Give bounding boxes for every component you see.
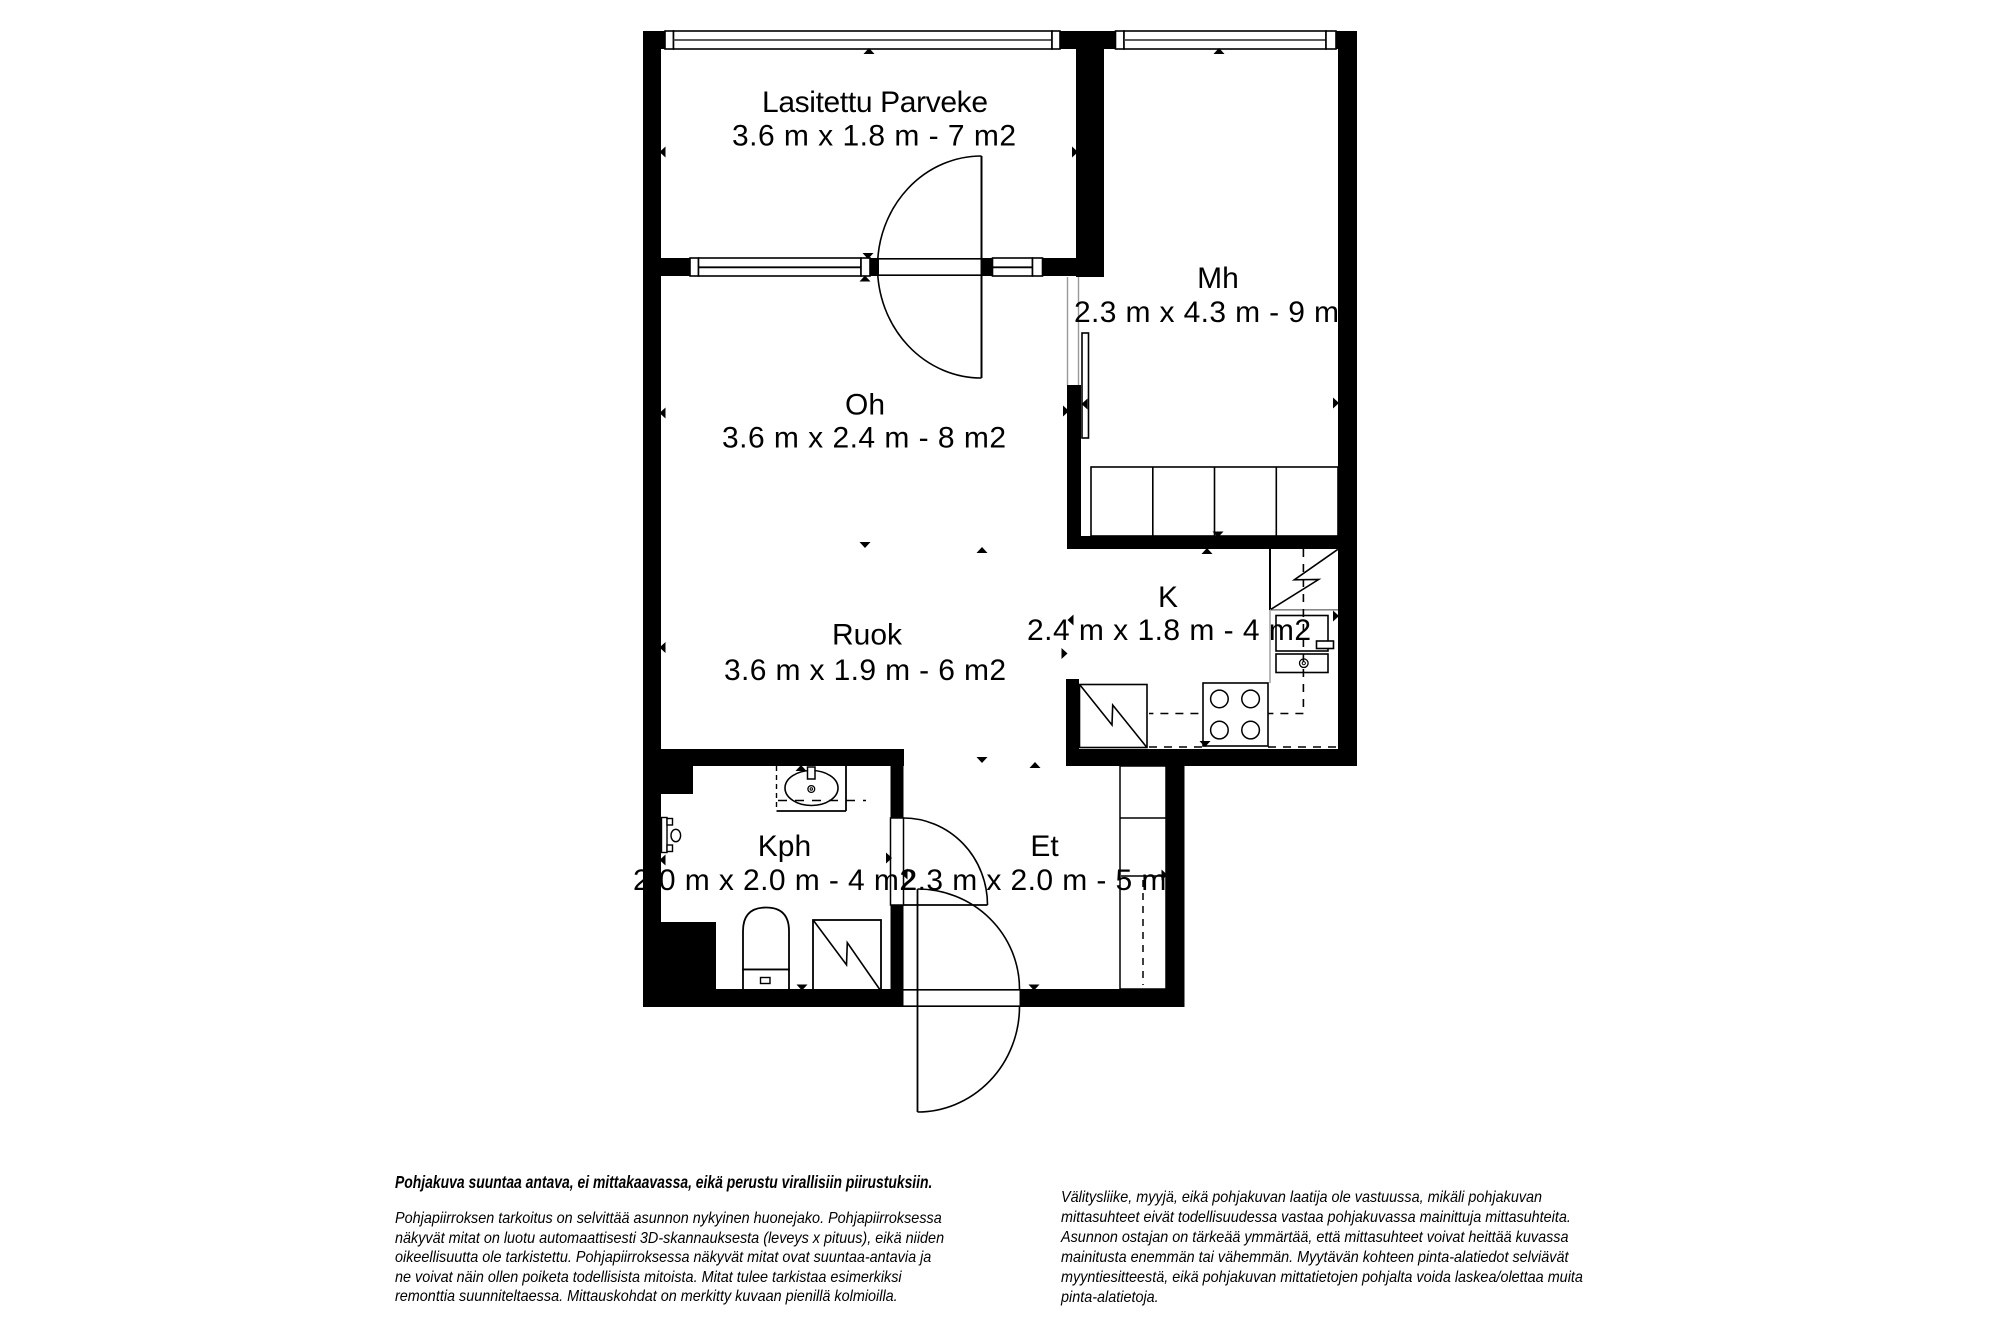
svg-text:Oh: Oh <box>845 389 885 422</box>
svg-text:Mh: Mh <box>1197 262 1239 295</box>
svg-text:3.6 m x 1.9 m - 6 m2: 3.6 m x 1.9 m - 6 m2 <box>724 654 1006 687</box>
svg-text:3.6 m x 2.4 m - 8 m2: 3.6 m x 2.4 m - 8 m2 <box>722 422 1006 455</box>
svg-text:Kph: Kph <box>758 830 811 863</box>
svg-text:Et: Et <box>1030 830 1059 863</box>
svg-text:Ruok: Ruok <box>832 619 903 652</box>
svg-text:Lasitettu Parveke: Lasitettu Parveke <box>762 86 988 119</box>
svg-text:2.0 m x 2.0 m - 4 m2: 2.0 m x 2.0 m - 4 m2 <box>633 864 916 897</box>
svg-text:K: K <box>1158 581 1178 614</box>
svg-text:2.3 m x 4.3 m - 9 m2: 2.3 m x 4.3 m - 9 m2 <box>1074 296 1356 329</box>
svg-text:2.3 m x 2.0 m - 5 m2: 2.3 m x 2.0 m - 5 m2 <box>901 864 1184 897</box>
svg-text:3.6 m x 1.8 m - 7 m2: 3.6 m x 1.8 m - 7 m2 <box>732 120 1016 153</box>
